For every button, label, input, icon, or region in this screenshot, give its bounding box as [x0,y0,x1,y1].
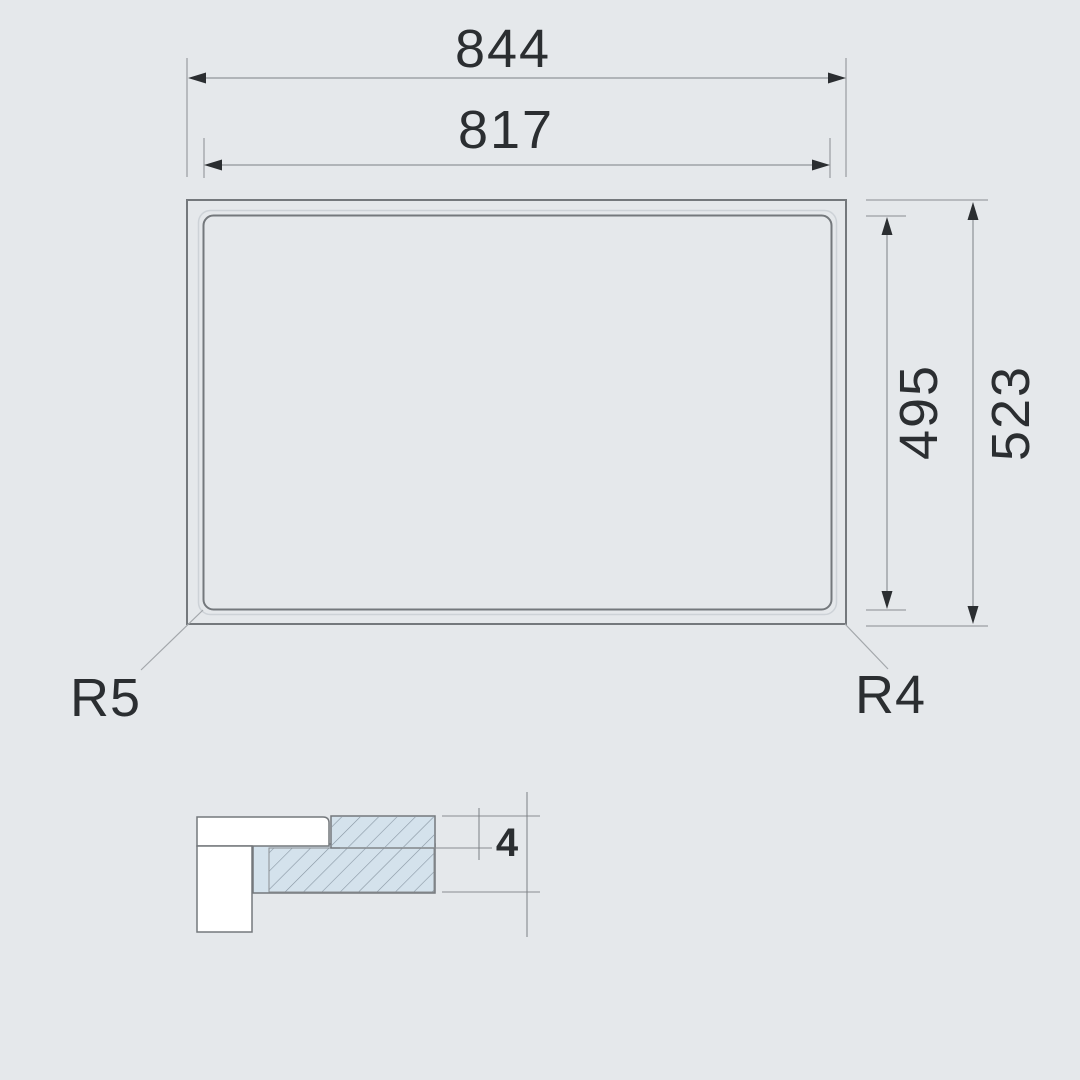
dimension-inner-height: 495 [866,216,949,610]
radius-bottom-left-label: R5 [70,668,141,728]
section-lower-hatch [269,848,434,892]
arrowhead-right-icon [812,160,830,171]
section-worktop-edge [197,846,252,932]
section-glass-hatch [332,817,434,847]
arrowhead-down-icon [968,606,979,624]
dimension-inner-width: 817 [204,100,830,178]
panel-inner-outline [204,216,832,610]
dim-thickness-label: 4 [496,821,519,865]
panel-outer-outline [187,200,846,624]
arrowhead-up-icon [882,217,893,235]
radius-bottom-right-label: R4 [855,665,926,725]
dim-inner-height-label: 495 [889,364,949,460]
arrowhead-right-icon [828,73,846,84]
arrowhead-down-icon [882,591,893,609]
arrowhead-left-icon [204,160,222,171]
drawing-svg: 844 817 495 [0,0,1080,1080]
plan-view: 844 817 495 [70,19,1041,728]
dim-outer-width-label: 844 [455,19,551,79]
dim-inner-width-label: 817 [458,100,554,160]
arrowhead-up-icon [968,202,979,220]
leader-line [845,624,888,669]
leader-line [141,610,203,670]
arrowhead-left-icon [188,73,206,84]
section-view: 4 [197,792,540,937]
panel-inner-bevel [199,211,837,615]
technical-drawing-canvas: 844 817 495 [0,0,1080,1080]
dim-outer-height-label: 523 [981,365,1041,461]
radius-callout-bottom-left: R5 [70,610,203,728]
section-worktop-top [197,817,329,846]
radius-callout-bottom-right: R4 [845,624,926,725]
